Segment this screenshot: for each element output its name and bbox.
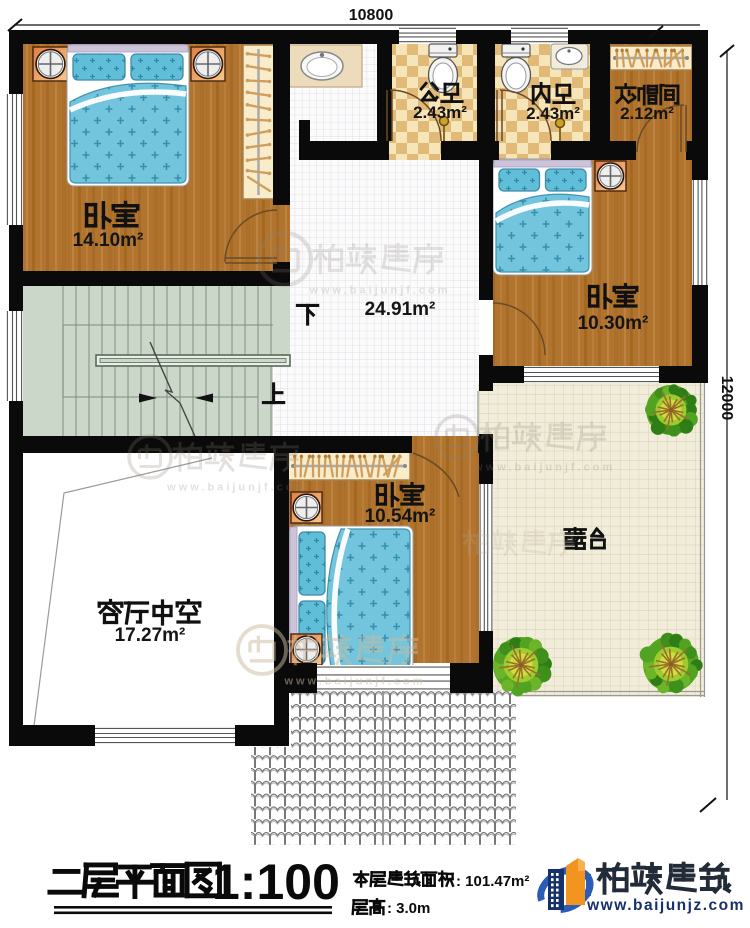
svg-text:www.baijunjf.com: www.baijunjf.com xyxy=(166,482,308,494)
svg-text:10.54m²: 10.54m² xyxy=(365,506,436,527)
svg-text:: 3.0m: : 3.0m xyxy=(387,900,430,917)
svg-text:www.baijunjf.com: www.baijunjf.com xyxy=(283,676,425,688)
svg-text:www.baijunjf.com: www.baijunjf.com xyxy=(308,285,450,297)
svg-text:10.30m²: 10.30m² xyxy=(578,313,649,334)
svg-text:24.91m²: 24.91m² xyxy=(365,299,436,320)
svg-text:www.baijunjz.com: www.baijunjz.com xyxy=(586,897,745,914)
svg-text:14.10m²: 14.10m² xyxy=(73,230,144,251)
svg-text:2.43m²: 2.43m² xyxy=(526,104,580,123)
svg-text:17.27m²: 17.27m² xyxy=(115,625,186,646)
svg-text:2.43m²: 2.43m² xyxy=(413,103,467,122)
svg-text:1:100: 1:100 xyxy=(212,854,340,910)
svg-text:10800: 10800 xyxy=(349,7,394,24)
svg-text:www.baijunjf.com: www.baijunjf.com xyxy=(473,462,615,474)
svg-text:2.12m²: 2.12m² xyxy=(620,104,674,123)
svg-text:12000: 12000 xyxy=(718,376,735,421)
svg-text:: 101.47m²: : 101.47m² xyxy=(456,873,529,890)
